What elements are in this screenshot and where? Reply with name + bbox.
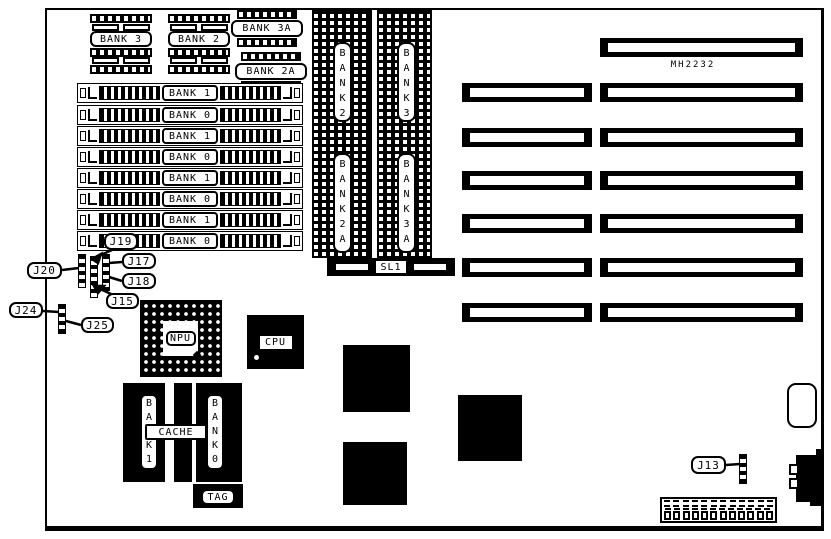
expansion-slot	[600, 214, 803, 233]
power-connector	[660, 497, 777, 523]
cache-bank0-label: BANK0	[206, 394, 224, 470]
jumper-label-j15: J15	[106, 293, 139, 309]
keyboard-connector-notch	[789, 464, 799, 475]
dip-socket-bank3: BANK 3	[90, 14, 152, 74]
simm-row-label: BANK 0	[162, 149, 218, 165]
expansion-slot	[462, 303, 592, 322]
jumper-label-j19: J19	[104, 233, 138, 250]
simm-row-label: BANK 0	[162, 107, 218, 123]
pinrow	[90, 14, 152, 23]
simm-row-label: BANK 0	[162, 233, 218, 249]
simm-row-label: BANK 1	[162, 128, 218, 144]
sl1-label: SL1	[375, 260, 407, 274]
simm-row-label: BANK 1	[162, 85, 218, 101]
pin1-dot	[254, 355, 259, 360]
simm-row-label: BANK 0	[162, 191, 218, 207]
npu-center: NPU	[163, 321, 198, 356]
simm-row: BANK 0	[77, 189, 303, 209]
bank2a-label: BANK 2A	[235, 63, 307, 80]
expansion-slot	[600, 258, 803, 277]
bank3a-label: BANK 3A	[231, 20, 303, 37]
qfp-chip	[343, 345, 410, 412]
simm-row: BANK 1	[77, 210, 303, 230]
power-pin-row-top	[664, 500, 773, 507]
expansion-slot	[462, 258, 592, 277]
expansion-slot	[600, 38, 803, 57]
expansion-slot	[462, 171, 592, 190]
mh2232-label: MH2232	[643, 60, 743, 70]
jumper-label-j20: J20	[27, 262, 62, 279]
tag-label: TAG	[201, 489, 235, 505]
keyboard-connector-notch	[789, 478, 799, 489]
expansion-slot	[600, 171, 803, 190]
simm-row: BANK 0	[77, 147, 303, 167]
dip-socket-bank3a: BANK 3A	[231, 10, 303, 47]
bank3a-vertical-label: BANK3A	[397, 153, 416, 253]
jumper-label-j18: J18	[122, 273, 156, 289]
simm-row-label: BANK 1	[162, 212, 218, 228]
npu-label: NPU	[166, 331, 196, 346]
bank3-label: BANK 3	[90, 31, 152, 47]
simm-row: BANK 1	[77, 168, 303, 188]
jumper-label-j17: J17	[122, 253, 156, 269]
expansion-slot	[600, 128, 803, 147]
expansion-slot	[462, 83, 592, 102]
simm-row: BANK 0	[77, 105, 303, 125]
power-connector-divider	[665, 508, 772, 510]
motherboard-diagram: BANK 3 BANK 2 BANK 3A BANK 2A BANK 1 BAN…	[0, 0, 831, 539]
jumper-label-j25: J25	[81, 317, 114, 333]
cpu-chip: CPU	[247, 315, 304, 369]
jumper-label-j13: J13	[691, 456, 726, 474]
crystal-outline	[787, 383, 817, 428]
qfp-chip	[343, 442, 407, 505]
keyboard-connector-step	[816, 449, 824, 457]
dip-socket-bank2: BANK 2	[168, 14, 230, 74]
simm-row: BANK 1	[77, 126, 303, 146]
jumper-block-j19-j15	[90, 256, 98, 298]
simm-row-label: BANK 1	[162, 170, 218, 186]
jumper-block-j17-j18	[102, 254, 110, 291]
cpu-label: CPU	[259, 335, 293, 350]
jumper-block-j24-j25	[58, 304, 66, 334]
jumper-block-j20	[78, 254, 86, 288]
sl1-connector: SL1	[327, 258, 455, 276]
expansion-slot	[462, 128, 592, 147]
expansion-slot	[600, 303, 803, 322]
keyboard-connector-step	[810, 500, 824, 506]
simm-row: BANK 1	[77, 83, 303, 103]
bank2-label: BANK 2	[168, 31, 230, 47]
expansion-slot	[600, 83, 803, 102]
keyboard-connector	[796, 455, 824, 502]
qfp-chip	[458, 395, 522, 461]
cache-label: CACHE	[145, 424, 207, 440]
bank3-vertical-label: BANK3	[397, 42, 416, 122]
bank2-vertical-label: BANK2	[333, 42, 352, 122]
power-pin-row-bottom	[664, 511, 773, 520]
jumper-block-j13	[739, 454, 747, 484]
bank2a-vertical-label: BANK2A	[333, 153, 352, 253]
jumper-label-j24: J24	[9, 302, 43, 318]
expansion-slot	[462, 214, 592, 233]
